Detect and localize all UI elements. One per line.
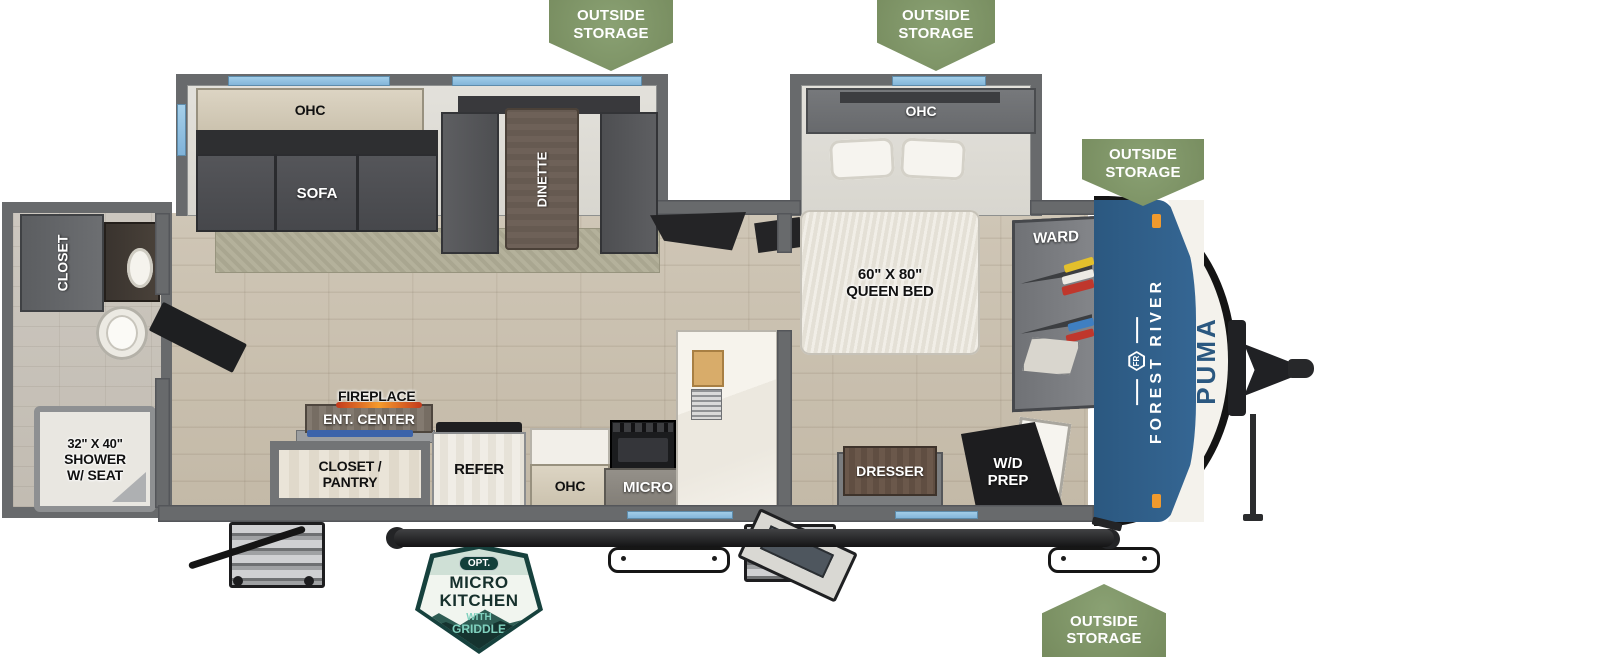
floorplan-canvas: OUTSIDE STORAGE OUTSIDE STORAGE OUTSIDE …: [0, 0, 1600, 660]
entertainment-center: ENT. CENTER: [305, 404, 433, 433]
window-strip: [895, 511, 978, 519]
outside-storage-label: STORAGE: [573, 25, 648, 43]
model-mark: PUMA: [1186, 250, 1226, 470]
hitch-frame: [1228, 320, 1246, 416]
toilet: [96, 306, 148, 360]
shower-label: W/ SEAT: [67, 467, 123, 483]
bathroom-sink: [127, 248, 153, 288]
dinette-table: DINETTE: [505, 108, 579, 250]
cutting-board: [692, 350, 724, 387]
brand-mark: FR FOREST RIVER: [1095, 210, 1199, 512]
dinette-bench: [600, 112, 658, 254]
outside-storage-label: STORAGE: [1105, 164, 1180, 182]
tongue-jack: [1250, 414, 1256, 516]
brand-name: FOREST RIVER: [1148, 278, 1166, 444]
shower: 32" X 40" SHOWER W/ SEAT: [34, 406, 156, 512]
bed-size-label: 60" X 80": [858, 266, 922, 283]
bedroom-overhead-cabinet: OHC: [806, 88, 1036, 134]
wardrobe-drawer: [1022, 335, 1080, 378]
step-wheel: [233, 576, 243, 586]
kitchen-overhead-cabinet: OHC: [530, 464, 610, 507]
micro-kitchen-label: MICRO: [449, 573, 508, 593]
window-strip: [627, 511, 733, 519]
sofa-back: [196, 130, 438, 156]
dresser-label: DRESSER: [856, 463, 924, 479]
fireplace-glass: [307, 430, 413, 437]
wd-prep-label: W/D: [993, 455, 1022, 472]
interior-wall: [777, 330, 792, 508]
wd-prep-label: PREP: [988, 472, 1029, 489]
dinette-bench: [441, 112, 499, 254]
refrigerator: REFER: [432, 432, 526, 507]
model-name: PUMA: [1191, 316, 1222, 405]
living-overhead-cabinet: OHC: [196, 88, 424, 132]
outside-storage-label: OUTSIDE: [577, 7, 645, 25]
ent-center-label: ENT. CENTER: [323, 411, 415, 427]
shower-label: SHOWER: [64, 451, 126, 467]
outside-storage-label: OUTSIDE: [1109, 146, 1177, 164]
hitch-coupler: [1288, 359, 1314, 378]
pillow: [829, 137, 895, 180]
micro-kitchen-label: KITCHEN: [439, 591, 518, 611]
screw-dot: [621, 556, 626, 561]
micro-kitchen-badge: OPT. MICRO KITCHEN WITH GRIDDLE: [415, 544, 543, 654]
window-strip: [177, 104, 186, 156]
sofa-cushion-divider: [356, 154, 359, 232]
sofa: SOFA: [196, 154, 438, 232]
entry-door-open: [737, 508, 858, 603]
queen-bed: 60" X 80" QUEEN BED: [800, 210, 980, 355]
outside-storage-label: STORAGE: [1066, 630, 1141, 648]
bumper-rail: [394, 529, 1114, 547]
window-strip: [892, 76, 986, 86]
forest-river-hex-logo-icon: FR: [1128, 351, 1145, 371]
outside-storage-badge-bottom: OUTSIDE STORAGE: [1042, 584, 1166, 657]
wardrobe: WARD: [1012, 216, 1100, 413]
outside-storage-badge-top-right: OUTSIDE STORAGE: [877, 0, 995, 71]
range-burners: [613, 423, 673, 432]
sofa-label: SOFA: [297, 185, 338, 202]
opt-pill: OPT.: [459, 556, 499, 571]
outside-storage-badge-top-left: OUTSIDE STORAGE: [549, 0, 673, 71]
interior-wall: [155, 213, 170, 295]
living-rug: [215, 228, 660, 273]
kitchen-counter: [530, 428, 610, 466]
sink-drainer: [691, 389, 722, 420]
fireplace-flame: [336, 402, 422, 408]
outside-storage-label: OUTSIDE: [902, 7, 970, 25]
outside-storage-label: STORAGE: [898, 25, 973, 43]
window-strip: [452, 76, 642, 86]
dresser-top: DRESSER: [843, 446, 937, 496]
shower-label: 32" X 40": [67, 436, 122, 451]
sink-counter: [676, 330, 778, 507]
micro-kitchen-badge-inner: OPT. MICRO KITCHEN WITH GRIDDLE: [420, 549, 538, 649]
closet-label: CLOSET: [54, 235, 70, 292]
range-door: [618, 438, 668, 462]
closet-pantry: CLOSET / PANTRY: [270, 441, 430, 507]
hitch-a-frame: [1244, 344, 1292, 396]
toilet-bowl: [106, 315, 138, 351]
kitchen-ohc-label: OHC: [555, 478, 586, 494]
forest-river-logo-letters: FR: [1130, 353, 1143, 369]
outside-storage-label: OUTSIDE: [1070, 613, 1138, 631]
dresser: DRESSER: [837, 452, 943, 507]
interior-wall: [155, 378, 170, 508]
grab-handle-bracket: [1048, 547, 1160, 573]
micro-label: MICRO: [623, 479, 673, 496]
interior-wall: [777, 213, 792, 253]
brand-rule: [1136, 379, 1138, 405]
refrigerator-label: REFER: [454, 461, 504, 478]
closet-pantry-label: CLOSET /: [319, 458, 382, 474]
screw-dot: [1061, 556, 1066, 561]
brand-rule: [1136, 317, 1138, 343]
with-griddle-label: GRIDDLE: [452, 622, 506, 636]
wardrobe-label: WARD: [1033, 227, 1079, 246]
living-ohc-label: OHC: [295, 102, 326, 118]
pillow: [900, 137, 966, 180]
bedroom-ohc-trim: [840, 92, 1000, 103]
bed-size-label: QUEEN BED: [846, 283, 933, 300]
range-cooktop: [610, 420, 676, 470]
screw-dot: [712, 556, 717, 561]
closet-pantry-label: PANTRY: [323, 474, 378, 490]
step-wheel: [304, 576, 314, 586]
jack-foot: [1243, 514, 1263, 521]
window-strip: [228, 76, 390, 86]
screw-dot: [1142, 556, 1147, 561]
brand-logo-row: FR: [1128, 317, 1145, 405]
bathroom-closet: CLOSET: [20, 214, 104, 312]
sofa-cushion-divider: [274, 154, 277, 232]
grab-handle-bracket: [608, 547, 730, 573]
exterior-wall: [1030, 200, 1100, 215]
bedroom-ohc-label: OHC: [905, 103, 936, 119]
dinette-label: DINETTE: [535, 151, 550, 207]
